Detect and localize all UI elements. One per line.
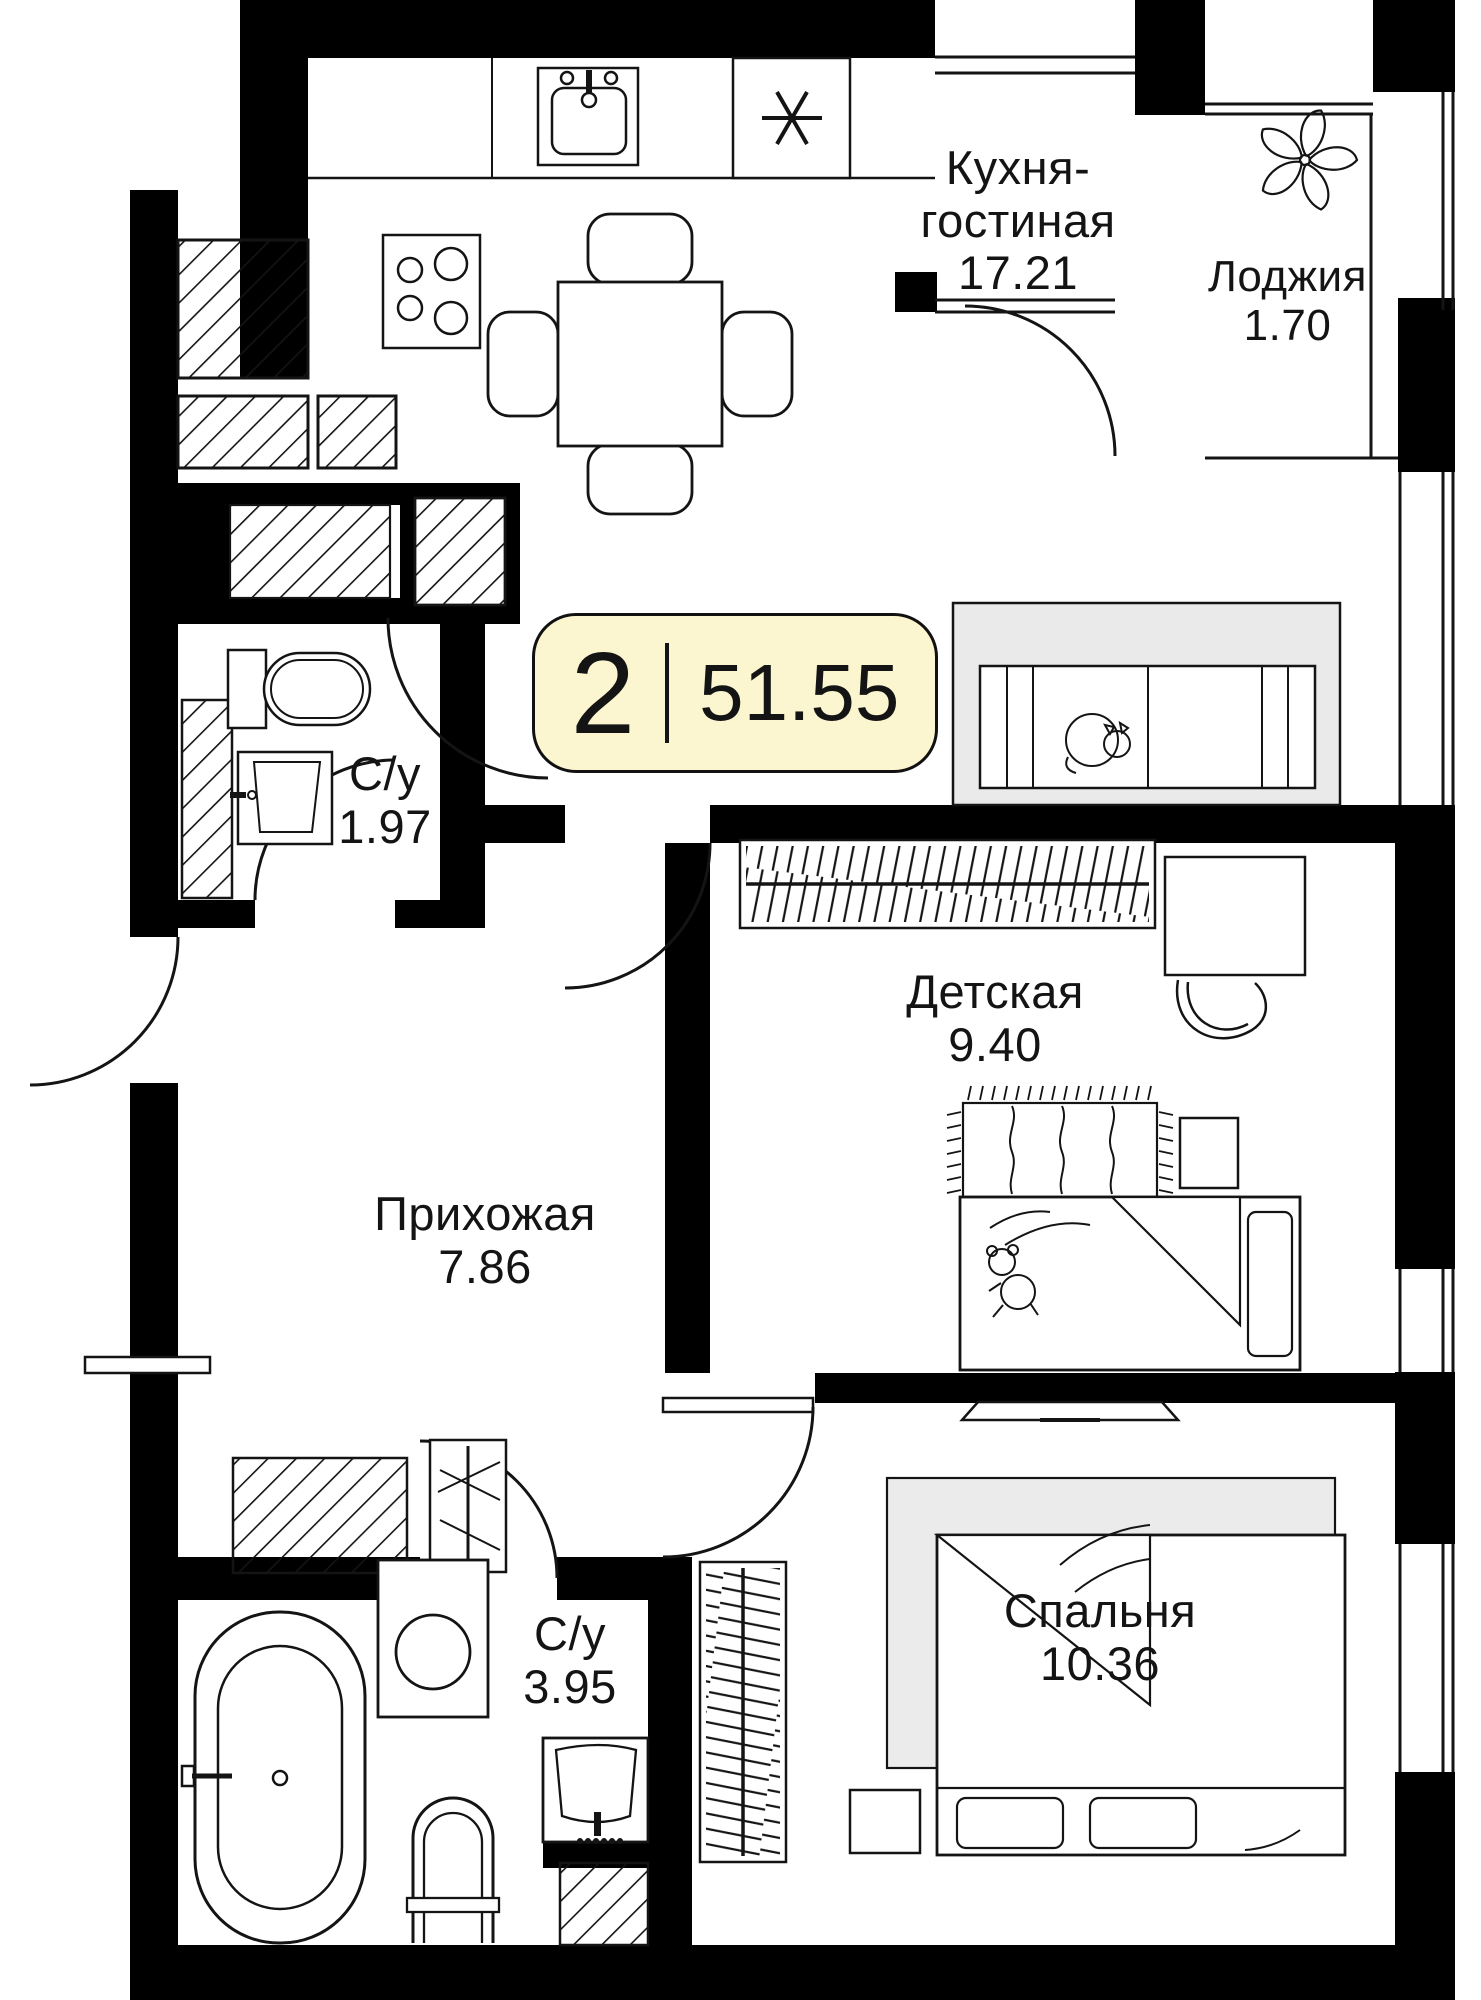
toilet-icon: [228, 650, 370, 728]
washbasin-icon-2: [543, 1738, 648, 1844]
room-area: 3.95: [523, 1661, 616, 1714]
toilet-icon-2: [407, 1798, 499, 1943]
room-name: Прихожая: [374, 1188, 596, 1241]
room-area: 17.21: [958, 247, 1078, 300]
room-name: Лоджия: [1208, 252, 1367, 301]
label-bathroom-large: С/у 3.95: [470, 1608, 670, 1713]
desk-chair-icon: [1177, 980, 1266, 1038]
desk-icon: [1165, 857, 1305, 975]
room-name: Спальня: [1004, 1585, 1196, 1638]
label-loggia: Лоджия 1.70: [1180, 252, 1395, 351]
total-area: 51.55: [699, 647, 899, 739]
chair-right: [722, 312, 792, 416]
tv-icon: [962, 1402, 1178, 1420]
stove-icon: [383, 235, 480, 348]
room-name: Кухня-: [946, 142, 1090, 195]
wardrobe-bedroom: [700, 1562, 786, 1862]
loggia-door-arc: [965, 306, 1115, 456]
label-kitchen-living: Кухня- гостиная 17.21: [858, 142, 1178, 300]
bathtub-icon: [182, 1612, 365, 1943]
badge-divider: [665, 643, 669, 743]
label-bedroom: Спальня 10.36: [950, 1585, 1250, 1690]
chair-top: [588, 214, 692, 284]
wardrobe-children: [740, 840, 1155, 928]
room-area: 7.86: [438, 1241, 531, 1294]
dining-table-icon: [488, 214, 792, 514]
bedroom-door-leaf: [663, 1398, 813, 1412]
room-area: 1.70: [1244, 301, 1332, 350]
room-area: 10.36: [1040, 1638, 1160, 1691]
room-name: гостиная: [920, 195, 1115, 248]
room-name: С/у: [349, 748, 421, 801]
area-badge: 2 51.55: [532, 613, 938, 773]
nightstand-icon: [1180, 1118, 1238, 1188]
bedroom-door-arc: [663, 1407, 813, 1557]
room-name: С/у: [534, 1608, 606, 1661]
label-children-room: Детская 9.40: [845, 966, 1145, 1071]
chair-bottom: [588, 444, 692, 514]
flower-icon: [1255, 107, 1357, 213]
sofa-icon: [953, 603, 1340, 805]
nightstand-bedroom: [850, 1790, 920, 1853]
label-hallway: Прихожая 7.86: [335, 1188, 635, 1293]
room-area: 1.97: [338, 801, 431, 854]
table: [558, 282, 722, 446]
hall-cabinet: [430, 1440, 506, 1572]
room-name: Детская: [906, 966, 1084, 1019]
kitchen-sink-icon: [538, 68, 638, 165]
room-area: 9.40: [948, 1019, 1041, 1072]
chair-left: [488, 312, 558, 416]
entrance-door-arc: [30, 937, 178, 1085]
rug-icon: [947, 1086, 1173, 1197]
label-bathroom-small: С/у 1.97: [285, 748, 485, 853]
room-count: 2: [571, 626, 636, 760]
floor-plan: Кухня- гостиная 17.21 Лоджия 1.70 С/у 1.…: [0, 0, 1481, 2000]
bed-children: [960, 1197, 1300, 1370]
